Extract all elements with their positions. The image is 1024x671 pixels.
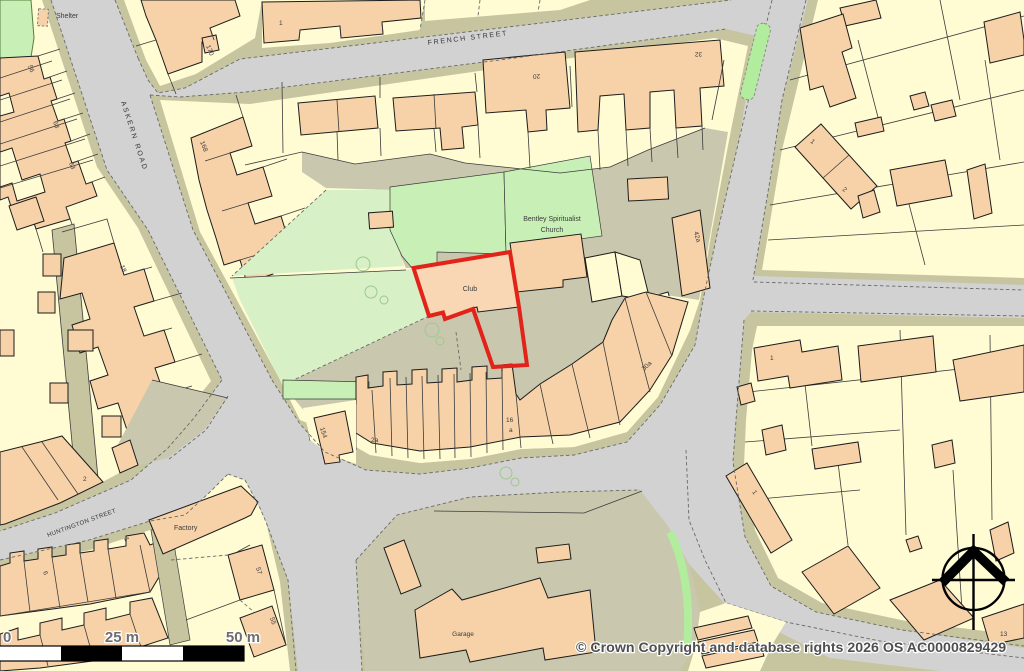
svg-text:32: 32 bbox=[694, 50, 702, 58]
svg-text:0: 0 bbox=[3, 629, 11, 646]
svg-text:2: 2 bbox=[83, 476, 87, 483]
svg-text:Factory: Factory bbox=[174, 525, 198, 532]
svg-text:13: 13 bbox=[1000, 631, 1008, 638]
svg-text:Shelter: Shelter bbox=[56, 13, 79, 20]
svg-text:Bentley Spiritualist: Bentley Spiritualist bbox=[523, 216, 581, 223]
svg-text:Garage: Garage bbox=[452, 631, 474, 638]
svg-text:16: 16 bbox=[506, 417, 514, 424]
svg-text:20: 20 bbox=[532, 72, 540, 80]
svg-text:50 m: 50 m bbox=[226, 629, 260, 646]
svg-text:Club: Club bbox=[463, 286, 478, 293]
svg-text:25 m: 25 m bbox=[105, 629, 139, 646]
svg-text:Church: Church bbox=[541, 227, 564, 234]
svg-text:a: a bbox=[509, 427, 513, 434]
svg-text:1: 1 bbox=[279, 20, 283, 27]
svg-text:© Crown Copyright and database: © Crown Copyright and database rights 20… bbox=[576, 640, 1006, 656]
svg-text:1: 1 bbox=[770, 355, 774, 362]
svg-text:2a: 2a bbox=[371, 437, 379, 444]
